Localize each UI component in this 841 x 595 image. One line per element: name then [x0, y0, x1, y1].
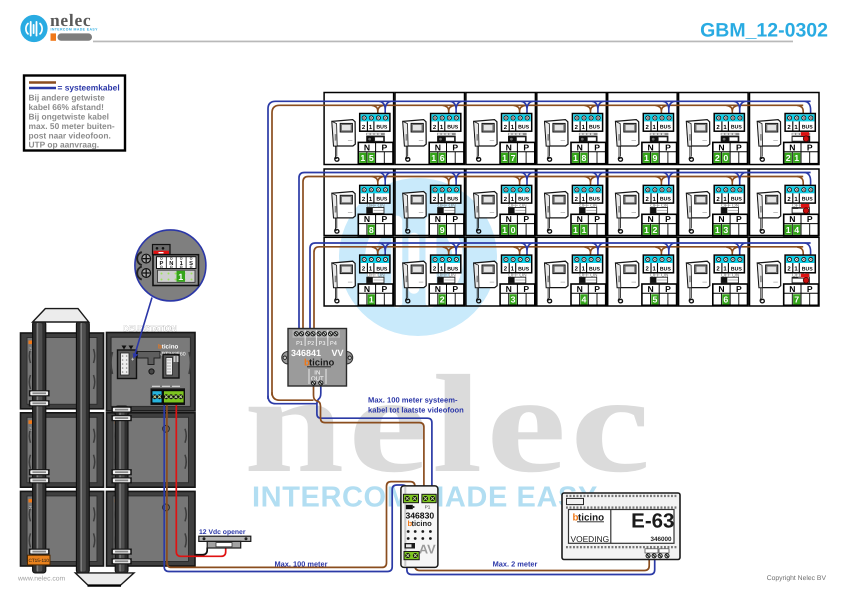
- svg-text:12 Vdc opener: 12 Vdc opener: [199, 529, 246, 536]
- svg-text:5: 5: [369, 153, 374, 163]
- svg-text:0: 0: [723, 153, 728, 163]
- svg-text:1: 1: [573, 153, 578, 163]
- svg-text:346000: 346000: [650, 536, 672, 543]
- svg-text:1: 1: [369, 295, 374, 305]
- svg-text:5: 5: [652, 295, 657, 305]
- svg-text:1: 1: [582, 225, 587, 235]
- svg-text:4: 4: [582, 295, 587, 305]
- svg-text:1: 1: [644, 225, 649, 235]
- svg-text:bticino: bticino: [158, 344, 179, 351]
- svg-text:1: 1: [794, 153, 799, 163]
- svg-text:6: 6: [723, 295, 728, 305]
- svg-text:GBM_12-0302: GBM_12-0302: [700, 20, 828, 42]
- svg-text:8: 8: [369, 225, 374, 235]
- svg-text:6: 6: [440, 153, 445, 163]
- svg-text:1: 1: [431, 153, 436, 163]
- svg-text:Copyright Nelec BV: Copyright Nelec BV: [767, 575, 827, 582]
- svg-text:7: 7: [794, 295, 799, 305]
- svg-text:2: 2: [440, 295, 445, 305]
- svg-text:P1: P1: [296, 341, 303, 347]
- svg-text:0: 0: [511, 225, 516, 235]
- svg-text:VOEDING: VOEDING: [571, 534, 610, 544]
- svg-text:Bij ongetwiste kabel: Bij ongetwiste kabel: [29, 112, 110, 122]
- svg-text:max. 50 meter buiten-: max. 50 meter buiten-: [29, 121, 115, 131]
- svg-text:1: 1: [178, 272, 183, 282]
- svg-text:ticino: ticino: [412, 519, 433, 528]
- svg-text:3: 3: [723, 225, 728, 235]
- svg-text:Max. 100 meter: Max. 100 meter: [275, 559, 328, 568]
- svg-text:INTERCOM MADE EASY: INTERCOM MADE EASY: [51, 28, 99, 32]
- svg-text:Max. 2 meter: Max. 2 meter: [493, 559, 538, 568]
- svg-text:7: 7: [511, 153, 516, 163]
- svg-text:1: 1: [573, 225, 578, 235]
- svg-text:www.nelec.com: www.nelec.com: [17, 576, 66, 583]
- svg-text:UTP op aanvraag.: UTP op aanvraag.: [29, 140, 100, 150]
- svg-text:AV: AV: [419, 542, 436, 557]
- svg-text:P2: P2: [307, 341, 314, 347]
- svg-text:2: 2: [715, 153, 720, 163]
- svg-text:4: 4: [794, 225, 799, 235]
- svg-text:E-63: E-63: [631, 510, 674, 533]
- svg-text:9: 9: [652, 153, 657, 163]
- svg-text:P3: P3: [319, 341, 326, 347]
- svg-text:1: 1: [786, 225, 791, 235]
- svg-text:9: 9: [440, 225, 445, 235]
- svg-text:VV: VV: [331, 348, 343, 358]
- svg-text:P4: P4: [330, 341, 337, 347]
- svg-text:2: 2: [652, 225, 657, 235]
- svg-text:= systeemkabel: = systeemkabel: [58, 83, 120, 93]
- svg-text:1: 1: [360, 153, 365, 163]
- svg-text:346841: 346841: [291, 348, 321, 358]
- svg-text:3: 3: [511, 295, 516, 305]
- svg-text:1: 1: [644, 153, 649, 163]
- svg-text:1: 1: [502, 153, 507, 163]
- svg-text:1: 1: [502, 225, 507, 235]
- svg-text:DEURSTATION: DEURSTATION: [123, 324, 177, 333]
- svg-text:kabel tot laatste videofoon: kabel tot laatste videofoon: [368, 405, 464, 414]
- svg-text:1: 1: [715, 225, 720, 235]
- svg-text:2: 2: [786, 153, 791, 163]
- svg-text:CT15-110: CT15-110: [28, 558, 49, 563]
- svg-text:8: 8: [582, 153, 587, 163]
- svg-text:kabel 66% afstand!: kabel 66% afstand!: [29, 102, 104, 112]
- svg-text:IN: IN: [314, 370, 320, 377]
- svg-text:P1: P1: [425, 505, 431, 510]
- svg-text:Bij andere getwiste: Bij andere getwiste: [29, 93, 106, 103]
- svg-text:Max. 100 meter systeem-: Max. 100 meter systeem-: [368, 396, 458, 405]
